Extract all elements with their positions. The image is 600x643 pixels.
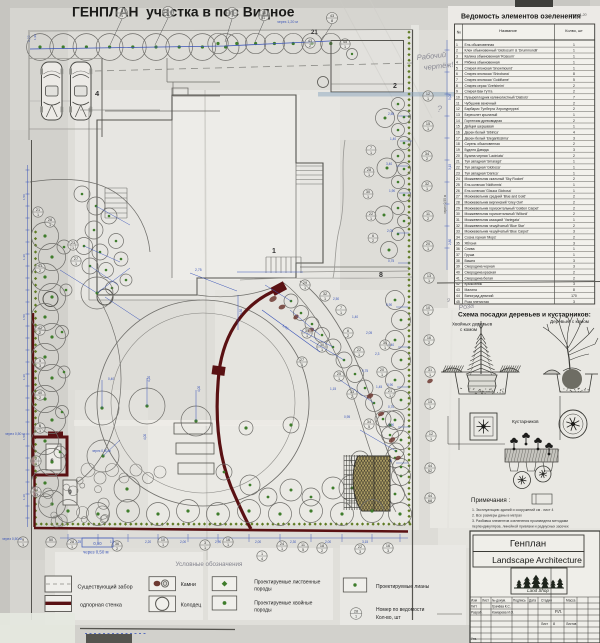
svg-text:68: 68 (428, 499, 432, 503)
svg-text:через 0,90 м: через 0,90 м (92, 449, 111, 453)
svg-text:8: 8 (573, 288, 575, 292)
svg-text:Landscape Architecture: Landscape Architecture (492, 555, 582, 565)
svg-text:Клен обыкновенный 'Globosum' &: Клен обыкновенный 'Globosum' & 'Drummond… (465, 49, 539, 53)
svg-text:Можжевельник горизонтальный 'G: Можжевельник горизонтальный 'Golden Carp… (465, 206, 540, 210)
svg-text:9: 9 (22, 538, 24, 542)
svg-text:1: 1 (204, 546, 206, 550)
svg-text:20: 20 (426, 242, 430, 246)
svg-text:0,75: 0,75 (362, 369, 368, 373)
svg-text:Масса: Масса (566, 599, 576, 603)
svg-text:5: 5 (573, 78, 575, 82)
svg-text:1: 1 (39, 429, 41, 433)
svg-text:через 1,20 м: через 1,20 м (277, 20, 298, 24)
svg-text:породы: породы (254, 608, 272, 614)
svg-text:Подпись: Подпись (513, 599, 526, 603)
svg-text:2: 2 (347, 334, 349, 338)
svg-text:Камни: Камни (181, 582, 196, 588)
svg-text:Бересклет крылатый: Бересклет крылатый (465, 113, 498, 117)
svg-text:Туя западная 'Danica': Туя западная 'Danica' (465, 171, 499, 175)
svg-text:1. Эксплуатацию зданий и соору: 1. Эксплуатацию зданий и сооружений см .… (472, 508, 553, 512)
svg-text:1: 1 (263, 16, 265, 20)
svg-text:22: 22 (357, 348, 361, 352)
svg-text:12: 12 (429, 432, 433, 436)
svg-text:Колодец: Колодец (181, 603, 202, 609)
svg-text:Комарова И.О.: Комарова И.О. (492, 611, 514, 615)
svg-text:1: 1 (75, 262, 77, 266)
svg-text:43: 43 (308, 39, 312, 43)
svg-text:4,30: 4,30 (239, 309, 243, 315)
svg-text:3: 3 (39, 364, 41, 368)
svg-text:Можжевельник скальный 'Sky Roc: Можжевельник скальный 'Sky Rocket' (465, 177, 524, 181)
svg-text:Бузина черная 'Laciniata': Бузина черная 'Laciniata' (465, 154, 504, 158)
svg-text:Вишня: Вишня (465, 259, 476, 263)
svg-text:2,75: 2,75 (195, 268, 202, 272)
svg-text:13: 13 (456, 113, 460, 117)
svg-text:41: 41 (38, 264, 42, 268)
svg-text:1: 1 (573, 189, 575, 193)
svg-text:33: 33 (350, 390, 354, 394)
svg-text:45: 45 (456, 300, 460, 304)
svg-text:3: 3 (573, 300, 575, 304)
svg-text:9: 9 (456, 90, 458, 94)
svg-text:2: 2 (231, 9, 233, 13)
svg-text:1: 1 (49, 223, 51, 227)
svg-text:Разраб.: Разраб. (471, 611, 483, 615)
svg-text:Номер по ведомости: Номер по ведомости (376, 607, 425, 613)
svg-text:2: 2 (372, 239, 374, 243)
svg-text:5: 5 (368, 425, 370, 429)
svg-text:Туя западная 'Globosa': Туя западная 'Globosa' (465, 166, 501, 170)
svg-text:через 0,50 м: через 0,50 м (443, 194, 447, 214)
svg-text:2,50: 2,50 (333, 297, 339, 301)
svg-text:44: 44 (456, 294, 460, 298)
svg-text:4,00: 4,00 (143, 434, 147, 440)
svg-text:3: 3 (387, 549, 389, 553)
svg-text:52: 52 (428, 469, 432, 473)
svg-text:2: 2 (116, 547, 118, 551)
svg-text:3: 3 (204, 541, 206, 545)
svg-text:одпорная стенка: одпорная стенка (80, 603, 122, 609)
svg-text:32: 32 (456, 224, 460, 228)
svg-text:2,90: 2,90 (215, 540, 221, 544)
svg-text:1: 1 (573, 160, 575, 164)
svg-text:2: 2 (428, 341, 430, 345)
svg-text:16: 16 (386, 544, 390, 548)
svg-text:10: 10 (262, 11, 266, 15)
svg-text:Можжевельник средний 'Blue and: Можжевельник средний 'Blue and Gold' (465, 195, 527, 199)
svg-text:Ведомость элементов озеленения: Ведомость элементов озеленения (461, 14, 581, 21)
svg-text:0,70: 0,70 (388, 405, 394, 409)
svg-text:с комом: с комом (460, 327, 477, 332)
svg-text:2: 2 (573, 119, 575, 123)
svg-text:2,05: 2,05 (366, 331, 372, 335)
svg-text:12: 12 (456, 107, 460, 111)
svg-text:породы: породы (254, 587, 272, 593)
svg-text:26: 26 (456, 189, 460, 193)
svg-text:15: 15 (428, 400, 432, 404)
svg-text:2: 2 (573, 84, 575, 88)
svg-text:Land Shop: Land Shop (527, 588, 549, 593)
svg-text:1: 1 (573, 125, 575, 129)
svg-text:Слива: Слива (465, 247, 475, 251)
svg-text:2: 2 (309, 44, 311, 48)
svg-text:1: 1 (573, 55, 575, 59)
svg-text:11: 11 (301, 543, 305, 547)
svg-text:50: 50 (49, 538, 53, 542)
svg-text:40: 40 (456, 271, 460, 275)
svg-text:33: 33 (456, 230, 460, 234)
svg-text:Лист: Лист (482, 599, 489, 603)
svg-text:28: 28 (367, 168, 371, 172)
svg-text:1,10: 1,10 (22, 494, 26, 500)
svg-text:2,05: 2,05 (387, 229, 393, 233)
svg-text:2: 2 (426, 157, 428, 161)
svg-text:2,00: 2,00 (255, 540, 261, 544)
svg-text:36: 36 (115, 542, 119, 546)
svg-text:1: 1 (573, 43, 575, 47)
svg-text:40: 40 (38, 391, 42, 395)
svg-text:Условные обозначения: Условные обозначения (176, 561, 243, 568)
svg-text:12: 12 (426, 92, 430, 96)
svg-text:Лист: Лист (541, 622, 548, 626)
svg-text:1: 1 (35, 462, 37, 466)
svg-text:23: 23 (456, 171, 460, 175)
svg-text:1,45: 1,45 (376, 385, 382, 389)
svg-text:4: 4 (456, 60, 458, 64)
svg-text:8: 8 (553, 622, 555, 626)
svg-text:Утв.: Утв. (471, 637, 477, 641)
svg-text:Ель обыкновенная: Ель обыкновенная (465, 43, 495, 47)
svg-text:44: 44 (428, 464, 432, 468)
svg-text:43: 43 (456, 288, 460, 292)
svg-text:20: 20 (456, 154, 460, 158)
svg-text:30: 30 (366, 190, 370, 194)
svg-text:2: 2 (456, 49, 458, 53)
svg-text:36: 36 (456, 247, 460, 251)
svg-text:0,90: 0,90 (386, 303, 392, 307)
svg-text:9: 9 (447, 298, 450, 304)
svg-text:2,00: 2,00 (325, 540, 331, 544)
svg-text:Виноград девичий: Виноград девичий (465, 294, 494, 298)
svg-text:2: 2 (39, 396, 41, 400)
svg-text:2. Все размеры даны в метрах: 2. Все размеры даны в метрах (472, 514, 522, 518)
svg-text:Туя западная 'Smaragd': Туя западная 'Smaragd' (465, 160, 502, 164)
svg-text:?: ? (437, 104, 442, 114)
svg-text:5: 5 (39, 359, 41, 363)
svg-text:27: 27 (300, 358, 304, 362)
svg-text:2,00: 2,00 (180, 540, 186, 544)
svg-text:Спирея японская 'Snowmound': Спирея японская 'Snowmound' (465, 66, 514, 70)
svg-text:Кустарников: Кустарников (512, 419, 539, 424)
svg-text:21: 21 (456, 160, 460, 164)
svg-text:Проектируемые хвойные: Проектируемые хвойные (254, 600, 312, 607)
svg-text:1,30: 1,30 (22, 374, 26, 380)
svg-text:21: 21 (36, 208, 40, 212)
svg-text:7: 7 (370, 146, 372, 150)
svg-text:29: 29 (456, 206, 460, 210)
svg-text:Можжевельник виргинский 'Grey: Можжевельник виргинский 'Grey Owl' (465, 201, 524, 205)
svg-text:1: 1 (370, 217, 372, 221)
svg-text:3: 3 (573, 230, 575, 234)
svg-text:15: 15 (426, 122, 430, 126)
svg-text:Стадия: Стадия (541, 599, 552, 603)
svg-text:2: 2 (351, 395, 353, 399)
svg-text:2: 2 (573, 101, 575, 105)
svg-text:2: 2 (573, 224, 575, 228)
svg-text:8: 8 (573, 72, 575, 76)
svg-text:25: 25 (337, 372, 341, 376)
svg-text:1: 1 (573, 66, 575, 70)
svg-text:31: 31 (456, 218, 460, 222)
svg-text:Пузыреплодник калинолистный 'D: Пузыреплодник калинолистный 'Diabolo' (465, 95, 529, 99)
svg-text:16: 16 (456, 131, 460, 135)
svg-text:17: 17 (456, 136, 460, 140)
svg-text:22: 22 (358, 545, 362, 549)
svg-text:Генплан: Генплан (510, 539, 546, 550)
svg-text:2: 2 (39, 331, 41, 335)
svg-text:8: 8 (39, 424, 41, 428)
svg-text:1,30: 1,30 (22, 254, 26, 260)
svg-text:3,15: 3,15 (448, 164, 452, 170)
svg-text:1: 1 (321, 348, 323, 352)
svg-text:Грачёва К.С.: Грачёва К.С. (492, 605, 511, 609)
svg-text:1: 1 (456, 43, 458, 47)
svg-text:28: 28 (354, 610, 358, 614)
svg-text:Дерен белый 'Sibirica': Дерен белый 'Sibirica' (465, 131, 499, 135)
svg-text:1,40: 1,40 (352, 315, 358, 319)
svg-text:6: 6 (347, 329, 349, 333)
svg-text:2: 2 (573, 107, 575, 111)
svg-text:35: 35 (456, 241, 460, 245)
svg-text:8: 8 (456, 84, 458, 88)
svg-text:34: 34 (425, 152, 429, 156)
svg-text:41: 41 (456, 276, 460, 280)
svg-text:6: 6 (372, 234, 374, 238)
svg-text:34: 34 (383, 341, 387, 345)
svg-text:1: 1 (573, 60, 575, 64)
svg-text:Роза плетистая: Роза плетистая (465, 300, 489, 304)
svg-text:Сосна горная 'Mops': Сосна горная 'Mops' (465, 236, 497, 240)
svg-text:10: 10 (161, 538, 165, 542)
svg-text:34: 34 (367, 420, 371, 424)
svg-text:0,90: 0,90 (93, 541, 102, 546)
svg-text:1: 1 (367, 195, 369, 199)
svg-text:Дерен белый 'Elegantissima': Дерен белый 'Elegantissima' (465, 136, 509, 140)
svg-text:2: 2 (39, 269, 41, 273)
svg-text:2: 2 (573, 177, 575, 181)
svg-text:1: 1 (301, 363, 303, 367)
svg-text:1: 1 (231, 14, 233, 18)
svg-text:6: 6 (456, 72, 458, 76)
svg-text:3: 3 (573, 136, 575, 140)
svg-text:21: 21 (388, 389, 392, 393)
svg-text:8: 8 (331, 19, 333, 23)
svg-text:1: 1 (573, 218, 575, 222)
svg-text:1: 1 (573, 183, 575, 187)
svg-text:1: 1 (272, 248, 276, 255)
svg-text:39: 39 (456, 265, 460, 269)
svg-text:37: 37 (456, 253, 460, 257)
svg-text:1: 1 (427, 247, 429, 251)
svg-text:1: 1 (573, 171, 575, 175)
svg-text:2: 2 (167, 13, 169, 17)
svg-text:24: 24 (280, 542, 284, 546)
svg-text:2: 2 (427, 217, 429, 221)
svg-text:170: 170 (571, 294, 577, 298)
svg-text:ГиП: ГиП (471, 605, 477, 609)
svg-text:3: 3 (359, 550, 361, 554)
svg-text:1,15: 1,15 (330, 387, 336, 391)
svg-text:Малина: Малина (465, 288, 477, 292)
svg-text:Смородина черная: Смородина черная (465, 265, 495, 269)
svg-text:Чубушник венечный: Чубушник венечный (465, 101, 497, 105)
svg-text:Спирея серая 'Grefsheim': Спирея серая 'Grefsheim' (465, 84, 505, 88)
svg-text:22: 22 (456, 166, 460, 170)
svg-text:1: 1 (573, 113, 575, 117)
svg-text:1: 1 (261, 552, 263, 556)
svg-text:24: 24 (456, 177, 460, 181)
svg-text:Примечания :: Примечания : (471, 497, 510, 504)
svg-text:27: 27 (456, 195, 460, 199)
svg-text:18: 18 (456, 142, 460, 146)
svg-text:28: 28 (70, 540, 74, 544)
svg-text:1: 1 (227, 543, 229, 547)
svg-text:1: 1 (338, 377, 340, 381)
svg-text:34: 34 (456, 236, 460, 240)
svg-text:№ докум.: № докум. (492, 599, 506, 603)
svg-text:3: 3 (573, 241, 575, 245)
svg-text:28: 28 (48, 218, 52, 222)
svg-text:15: 15 (456, 125, 460, 129)
svg-text:3,40: 3,40 (386, 162, 392, 166)
svg-text:1: 1 (368, 173, 370, 177)
svg-text:44: 44 (34, 488, 38, 492)
svg-text:0,90: 0,90 (387, 383, 393, 387)
svg-text:Хвойных деревьев: Хвойных деревьев (452, 321, 493, 327)
svg-text:2,80: 2,80 (448, 239, 452, 245)
svg-text:3: 3 (573, 148, 575, 152)
svg-text:1: 1 (37, 213, 39, 217)
svg-text:Дата: Дата (529, 599, 536, 603)
svg-text:Изм: Изм (471, 599, 477, 603)
svg-text:Барбарис Тунберга 'Атропурпуре: Барбарис Тунберга 'Атропурпуреа' (465, 107, 520, 111)
svg-text:1: 1 (370, 151, 372, 155)
svg-text:4: 4 (573, 131, 575, 135)
svg-text:2: 2 (573, 142, 575, 146)
svg-text:через 0,50 м: через 0,50 м (5, 432, 25, 436)
svg-text:1: 1 (162, 543, 164, 547)
svg-text:3: 3 (573, 265, 575, 269)
svg-text:20: 20 (380, 368, 384, 372)
svg-text:1: 1 (304, 286, 306, 290)
svg-text:14: 14 (456, 119, 460, 123)
svg-text:1: 1 (429, 373, 431, 377)
svg-text:10: 10 (426, 306, 430, 310)
svg-text:23: 23 (71, 241, 75, 245)
svg-text:2,3: 2,3 (375, 352, 380, 356)
svg-text:Сирень обыкновенная: Сирень обыкновенная (465, 142, 500, 146)
svg-text:11: 11 (426, 212, 430, 216)
svg-text:1: 1 (573, 247, 575, 251)
svg-text:2,30: 2,30 (290, 540, 296, 544)
svg-text:34: 34 (305, 329, 309, 333)
svg-text:1: 1 (573, 49, 575, 53)
svg-text:28: 28 (456, 201, 460, 205)
svg-text:13: 13 (427, 274, 431, 278)
svg-text:Ель колючая 'Glauca Globosa': Ель колючая 'Glauca Globosa' (465, 189, 512, 193)
svg-text:1: 1 (430, 437, 432, 441)
svg-text:33: 33 (34, 493, 38, 497)
svg-text:7: 7 (456, 78, 458, 82)
svg-text:0,75: 0,75 (388, 259, 394, 263)
svg-text:Смородина белая: Смородина белая (465, 276, 493, 280)
svg-text:2: 2 (573, 90, 575, 94)
svg-text:2: 2 (573, 236, 575, 240)
svg-text:Листов: Листов (566, 622, 577, 626)
svg-text:1: 1 (344, 45, 346, 49)
svg-text:1: 1 (306, 334, 308, 338)
svg-text:Гортензия древовидная: Гортензия древовидная (465, 119, 503, 123)
svg-text:3: 3 (573, 259, 575, 263)
svg-text:Калина обыкновенная 'Roseum': Калина обыкновенная 'Roseum' (465, 55, 515, 59)
svg-text:1: 1 (573, 253, 575, 257)
svg-text:Рябина обыкновенная: Рябина обыкновенная (465, 60, 500, 64)
svg-text:Существующий забор: Существующий забор (78, 584, 133, 591)
svg-text:1,50: 1,50 (22, 194, 26, 200)
svg-text:5: 5 (302, 548, 304, 552)
svg-text:1: 1 (121, 14, 123, 18)
svg-text:0,40: 0,40 (108, 377, 114, 381)
svg-text:10: 10 (456, 95, 460, 99)
svg-text:Спирея Ван Гутта: Спирея Ван Гутта (465, 90, 493, 94)
svg-text:1: 1 (426, 187, 428, 191)
svg-text:4: 4 (261, 557, 263, 561)
svg-text:1: 1 (384, 346, 386, 350)
svg-text:2: 2 (573, 271, 575, 275)
svg-text:16: 16 (427, 336, 431, 340)
svg-text:7: 7 (573, 95, 575, 99)
svg-text:19: 19 (456, 148, 460, 152)
svg-text:1: 1 (427, 311, 429, 315)
svg-text:2: 2 (321, 549, 323, 553)
svg-text:1: 1 (429, 405, 431, 409)
svg-text:1: 1 (427, 127, 429, 131)
svg-text:1: 1 (355, 615, 357, 619)
svg-text:21: 21 (311, 30, 318, 36)
svg-text:Будлея Давида: Будлея Давида (465, 148, 489, 152)
svg-text:1: 1 (427, 97, 429, 101)
svg-text:1: 1 (381, 373, 383, 377)
svg-text:11: 11 (456, 101, 460, 105)
svg-text:16: 16 (226, 538, 230, 542)
svg-text:Можжевельник горизонтальный 'W: Можжевельник горизонтальный 'Wiltonii' (465, 212, 529, 216)
svg-text:32: 32 (425, 182, 429, 186)
svg-text:5,05: 5,05 (448, 94, 452, 100)
svg-text:1: 1 (281, 547, 283, 551)
svg-text:38: 38 (456, 259, 460, 263)
svg-text:3. Разбивка элементов озеленен: 3. Разбивка элементов озеленения произве… (472, 519, 568, 523)
svg-text:2: 2 (573, 201, 575, 205)
svg-text:Проектируемые лиственные: Проектируемые лиственные (254, 580, 320, 586)
svg-text:1: 1 (340, 311, 342, 315)
svg-text:3,15: 3,15 (362, 540, 368, 544)
svg-text:18: 18 (320, 544, 324, 548)
svg-text:22: 22 (369, 212, 373, 216)
svg-text:Проектируемые лианы: Проектируемые лианы (376, 584, 430, 590)
svg-text:Смородина красная: Смородина красная (465, 271, 497, 275)
svg-text:1,90: 1,90 (389, 189, 395, 193)
svg-text:1: 1 (428, 279, 430, 283)
